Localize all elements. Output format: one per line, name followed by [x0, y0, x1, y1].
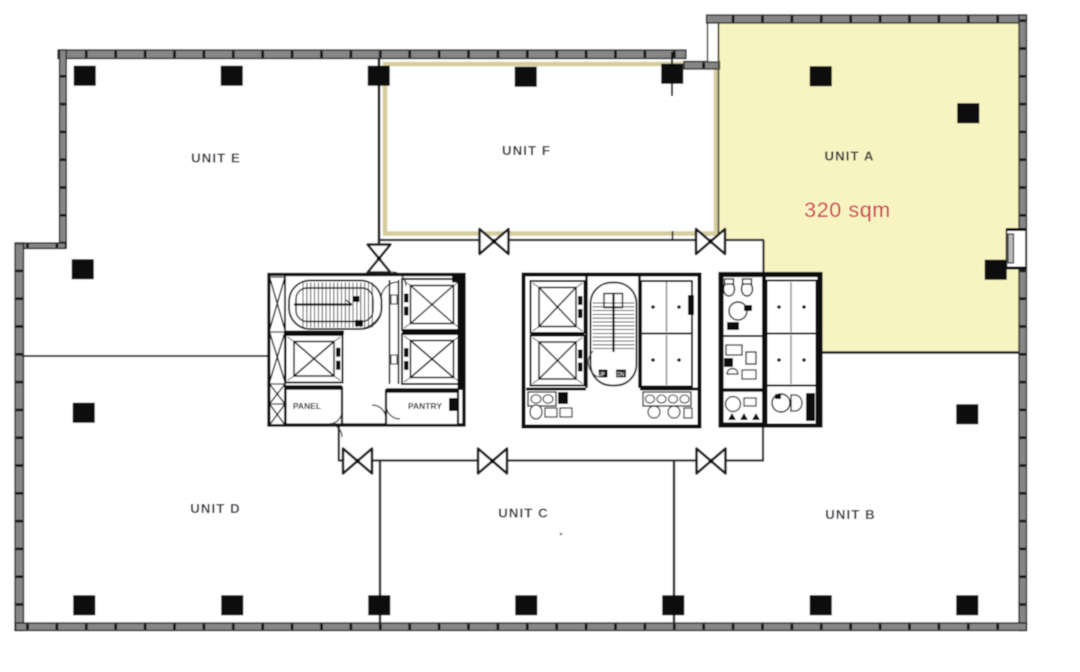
svg-text:PANTRY: PANTRY — [408, 401, 442, 411]
svg-text:DN: DN — [617, 372, 625, 378]
svg-text:UNIT D: UNIT D — [190, 501, 241, 516]
svg-text:UNIT B: UNIT B — [825, 507, 876, 522]
svg-text:UP: UP — [598, 372, 606, 378]
svg-text:320 sqm: 320 sqm — [804, 198, 891, 222]
svg-text:PANEL: PANEL — [293, 401, 321, 411]
svg-text:UNIT C: UNIT C — [498, 506, 549, 521]
svg-text:UNIT A: UNIT A — [824, 149, 874, 164]
svg-text:UNIT E: UNIT E — [191, 151, 241, 166]
svg-text:UNIT F: UNIT F — [502, 143, 551, 158]
